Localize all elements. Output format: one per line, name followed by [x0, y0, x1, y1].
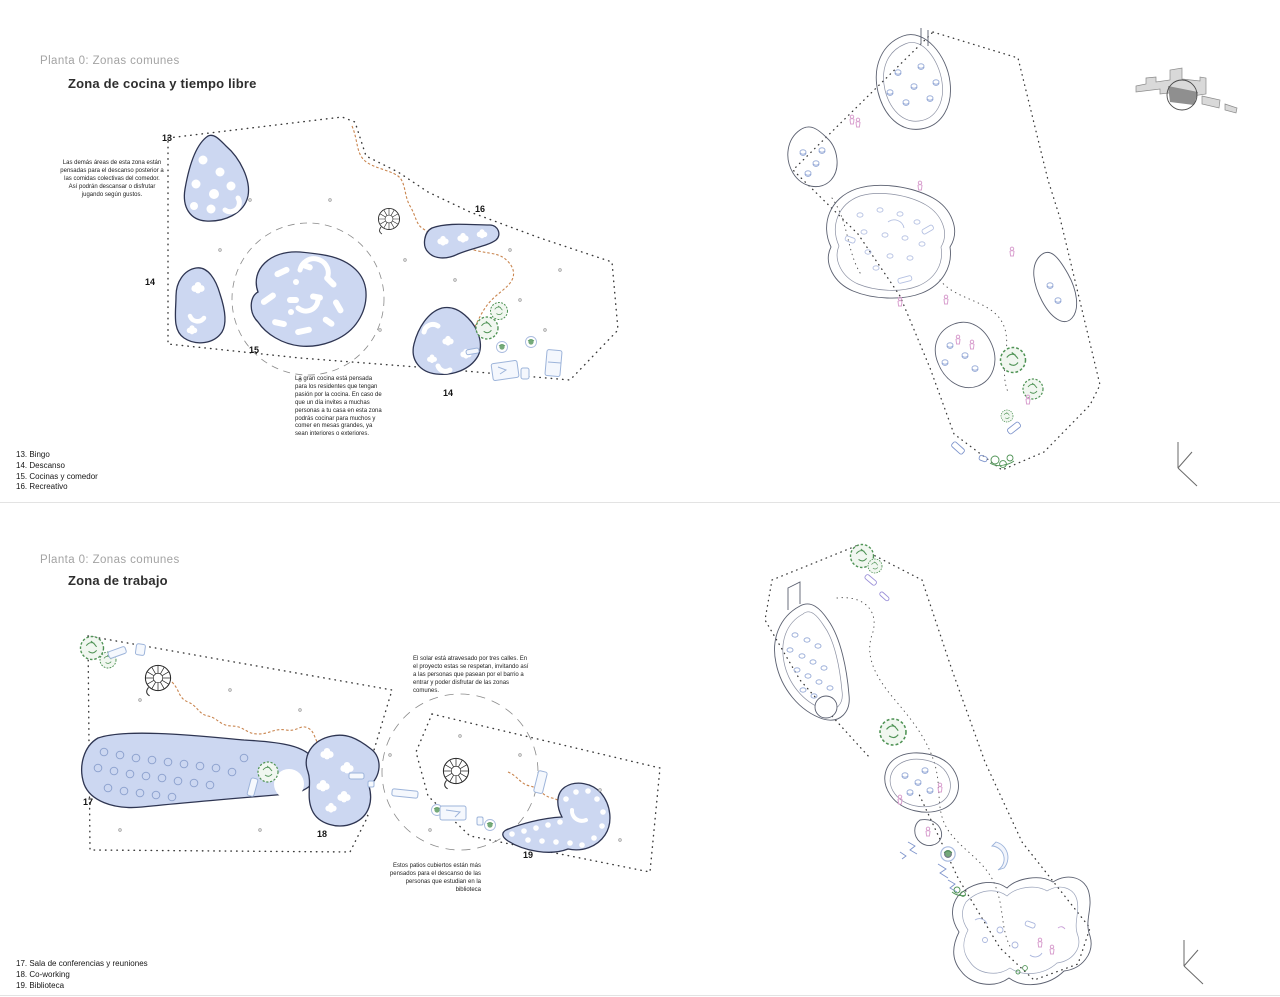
legend-item: 14. Descanso — [16, 461, 98, 472]
panel-title: Zona de cocina y tiempo libre — [68, 76, 257, 91]
axon-room-lower — [935, 322, 995, 387]
legend-item: 15. Cocinas y comedor — [16, 472, 98, 483]
panel-title: Zona de trabajo — [68, 573, 168, 588]
annotation-descanso: Las demás áreas de esta zona están pensa… — [60, 160, 164, 200]
site-plan-trabajo — [81, 636, 661, 872]
zone-label-19: 19 — [523, 850, 533, 860]
zone-label-13: 13 — [162, 133, 172, 143]
panel-divider — [0, 502, 1280, 503]
zone-19-library — [503, 783, 610, 852]
zone-13-bingo — [184, 135, 248, 221]
annotation-calles: El solar está atravesado por tres calles… — [413, 656, 529, 696]
presentation-board: Planta 0: Zonas comunes Zona de cocina y… — [0, 0, 1280, 997]
zone-label-18: 18 — [317, 829, 327, 839]
panel-cocina-drawing — [0, 0, 1280, 500]
outdoor-furniture-cocina — [466, 348, 562, 381]
orientation-arrow-icon — [1184, 940, 1203, 984]
axon-boundary — [856, 546, 1090, 980]
legend-item: 16. Recreativo — [16, 482, 98, 493]
axon-entry-items-trabajo — [938, 842, 1008, 896]
axon-room-top — [876, 28, 950, 129]
legend-item: 13. Bingo — [16, 450, 98, 461]
zone-label-14b: 14 — [443, 388, 453, 398]
site-plan-cocina — [168, 117, 618, 381]
panel-kicker: Planta 0: Zonas comunes — [40, 55, 180, 67]
legend-item: 18. Co-working — [16, 970, 148, 981]
panel-kicker: Planta 0: Zonas comunes — [40, 554, 180, 566]
axon-patio-blob — [900, 820, 942, 859]
legend-item: 17. Sala de conferencias y reuniones — [16, 959, 148, 970]
axon-coworking-room — [885, 753, 959, 812]
zone-14-rest-right — [413, 307, 480, 374]
axon-benches — [864, 574, 890, 602]
spiral-stair-icon — [378, 208, 399, 234]
zone-label-14: 14 — [145, 277, 155, 287]
axon-trees-cocina — [1001, 348, 1044, 423]
axon-trabajo — [765, 545, 1091, 985]
zone-label-15: 15 — [249, 345, 259, 355]
zone-14-rest-left — [175, 268, 225, 343]
zone-17-conference — [82, 733, 317, 807]
legend-item: 19. Biblioteca — [16, 981, 148, 992]
zone-label-16: 16 — [475, 204, 485, 214]
axon-conference-room — [775, 582, 850, 720]
axon-room-left — [788, 127, 837, 187]
annotation-cocina: La gran cocina está pensada para los res… — [295, 376, 383, 439]
axon-trees-trabajo — [851, 545, 907, 746]
axon-room-kitchen — [827, 185, 955, 298]
spiral-stair-icon — [145, 665, 170, 695]
board-bottom-edge — [0, 995, 1280, 996]
spiral-stair-icon — [443, 758, 468, 788]
axon-cocina — [788, 28, 1100, 470]
orientation-arrow-icon — [1178, 442, 1197, 486]
legend-trabajo: 17. Sala de conferencias y reuniones 18.… — [16, 959, 148, 991]
building-locator-icon — [1136, 68, 1237, 113]
annotation-patios: Estos patios cubiertos están más pensado… — [382, 863, 481, 895]
axon-shrubs — [990, 455, 1014, 467]
panel-trabajo-drawing — [0, 500, 1280, 997]
axon-entry-items — [951, 421, 1022, 462]
zone-15-kitchen — [251, 252, 366, 346]
zone-label-17: 17 — [83, 797, 93, 807]
trees-cocina — [476, 303, 537, 353]
axon-library — [952, 877, 1091, 985]
axon-room-right — [1034, 252, 1077, 321]
legend-cocina: 13. Bingo 14. Descanso 15. Cocinas y com… — [16, 450, 98, 493]
axon-boundary — [793, 32, 1100, 470]
zone-18-coworking — [306, 735, 379, 826]
